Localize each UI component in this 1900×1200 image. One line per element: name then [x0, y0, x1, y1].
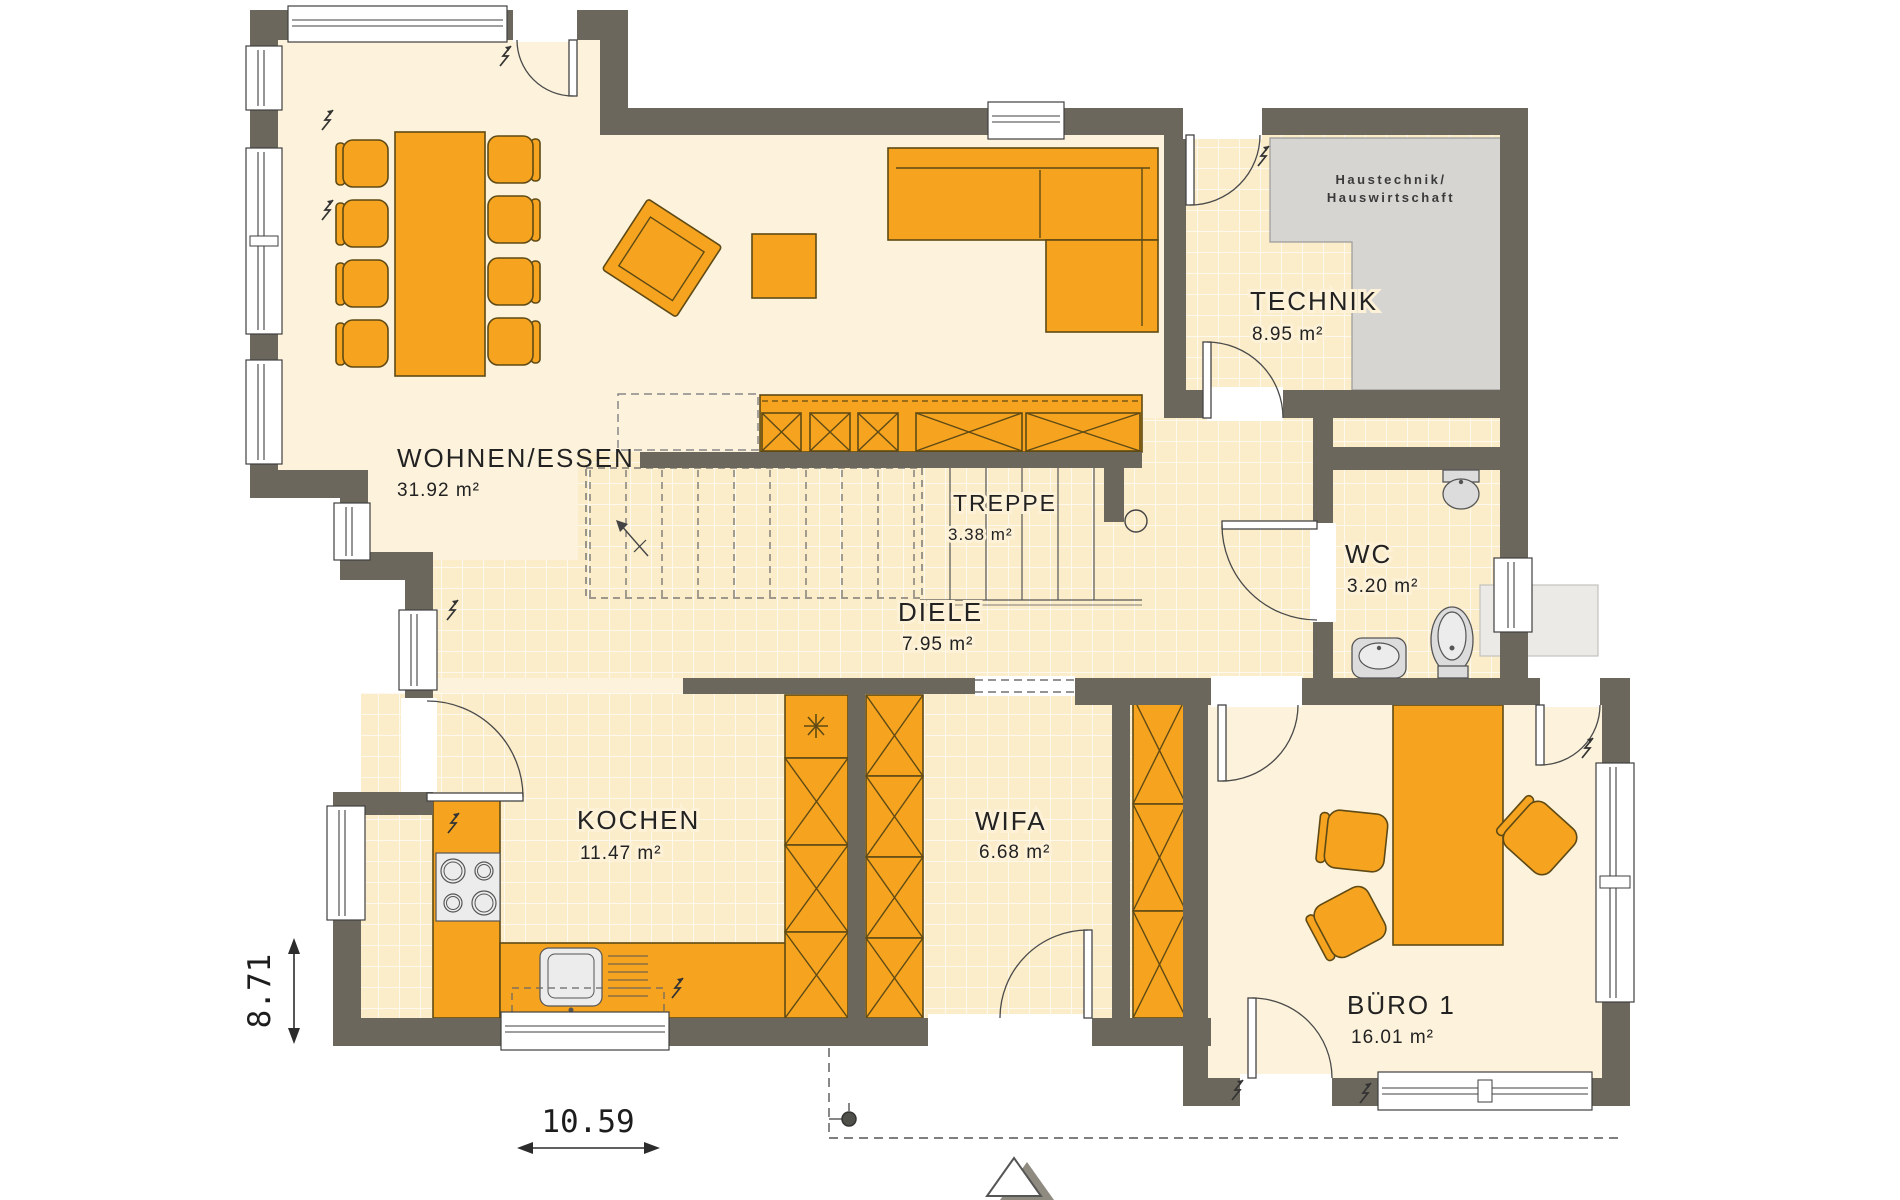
window [399, 610, 437, 690]
office-chair [1315, 808, 1389, 873]
window [1596, 763, 1634, 1002]
window [501, 1012, 669, 1050]
window [246, 148, 282, 334]
room-label-kochen: KOCHEN [577, 805, 700, 835]
room-area-wohnen-essen: 31.92 m² [397, 480, 480, 501]
window [246, 46, 282, 110]
room-label-wohnen-essen: WOHNEN/ESSEN [397, 443, 635, 473]
dining-chair [336, 320, 388, 367]
dimension-height: 8.71 [242, 938, 300, 1044]
sideboard [760, 395, 1142, 452]
note-haustechnik-line1: Haustechnik/ [1336, 172, 1447, 187]
utility-connection-point [842, 1112, 856, 1126]
dimension-width-label: 10.59 [541, 1104, 634, 1140]
dining-chair [336, 200, 388, 247]
dining-table [395, 132, 485, 376]
room-label-treppe: TREPPE [953, 490, 1057, 516]
wifa-cabinets [866, 695, 923, 1018]
note-haustechnik-line2: Hauswirtschaft [1327, 190, 1455, 205]
window [327, 806, 365, 920]
kitchen-tall-cabinets [785, 695, 848, 1018]
window [246, 360, 282, 464]
dining-chair [488, 318, 540, 365]
room-area-technik: 8.95 m² [1252, 324, 1323, 345]
window [1378, 1072, 1592, 1110]
entry-wardrobe [1133, 697, 1186, 1018]
floor-plan-drawing: WOHNEN/ESSEN 31.92 m² TECHNIK 8.95 m² Ha… [0, 0, 1900, 1200]
office-desk [1393, 705, 1503, 945]
room-area-treppe: 3.38 m² [948, 525, 1013, 544]
dimension-height-label: 8.71 [242, 954, 278, 1029]
entrance-marker [987, 1158, 1054, 1200]
window [988, 102, 1064, 139]
coffee-table [752, 234, 816, 298]
room-area-diele: 7.95 m² [902, 634, 973, 655]
window [288, 6, 507, 42]
room-area-wifa: 6.68 m² [979, 842, 1050, 863]
room-area-buero1: 16.01 m² [1351, 1027, 1434, 1048]
dining-chair [488, 258, 540, 305]
dining-chair [336, 140, 388, 187]
dimension-width: 10.59 [517, 1104, 660, 1154]
room-area-wc: 3.20 m² [1347, 576, 1418, 597]
dining-chair [336, 260, 388, 307]
room-label-wc: WC [1345, 539, 1392, 569]
dining-chair [488, 136, 540, 183]
room-label-technik: TECHNIK [1250, 286, 1378, 316]
room-label-diele: DIELE [898, 597, 983, 627]
dining-chair [488, 196, 540, 243]
room-label-wifa: WIFA [975, 806, 1047, 836]
room-label-buero1: BÜRO 1 [1347, 990, 1456, 1020]
cooktop [436, 853, 500, 921]
window [334, 503, 370, 560]
opening-wifa-dashed [975, 676, 1075, 696]
washbasin-icon [1443, 470, 1479, 509]
floor-plan-canvas: WOHNEN/ESSEN 31.92 m² TECHNIK 8.95 m² Ha… [0, 0, 1900, 1200]
room-area-kochen: 11.47 m² [580, 843, 662, 864]
sink-icon [1352, 638, 1406, 678]
window [1494, 558, 1532, 632]
